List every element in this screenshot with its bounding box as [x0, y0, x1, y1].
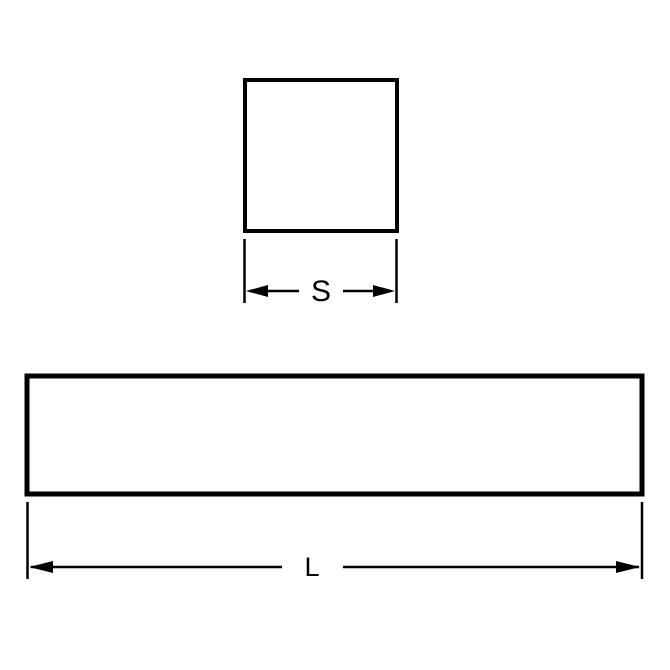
arrow-left-icon: [29, 561, 53, 573]
square-cross-section-outline: [245, 80, 397, 231]
dimension-label-l: L: [304, 552, 319, 582]
arrow-left-icon: [246, 285, 268, 297]
drawing-svg: S L: [0, 0, 670, 670]
technical-drawing: S L: [0, 0, 670, 670]
bar-side-outline: [27, 376, 642, 494]
arrow-right-icon: [373, 285, 395, 297]
length-view: L: [27, 376, 642, 582]
arrow-right-icon: [616, 561, 640, 573]
cross-section-view: S: [245, 80, 398, 308]
dimension-label-s: S: [311, 275, 331, 308]
